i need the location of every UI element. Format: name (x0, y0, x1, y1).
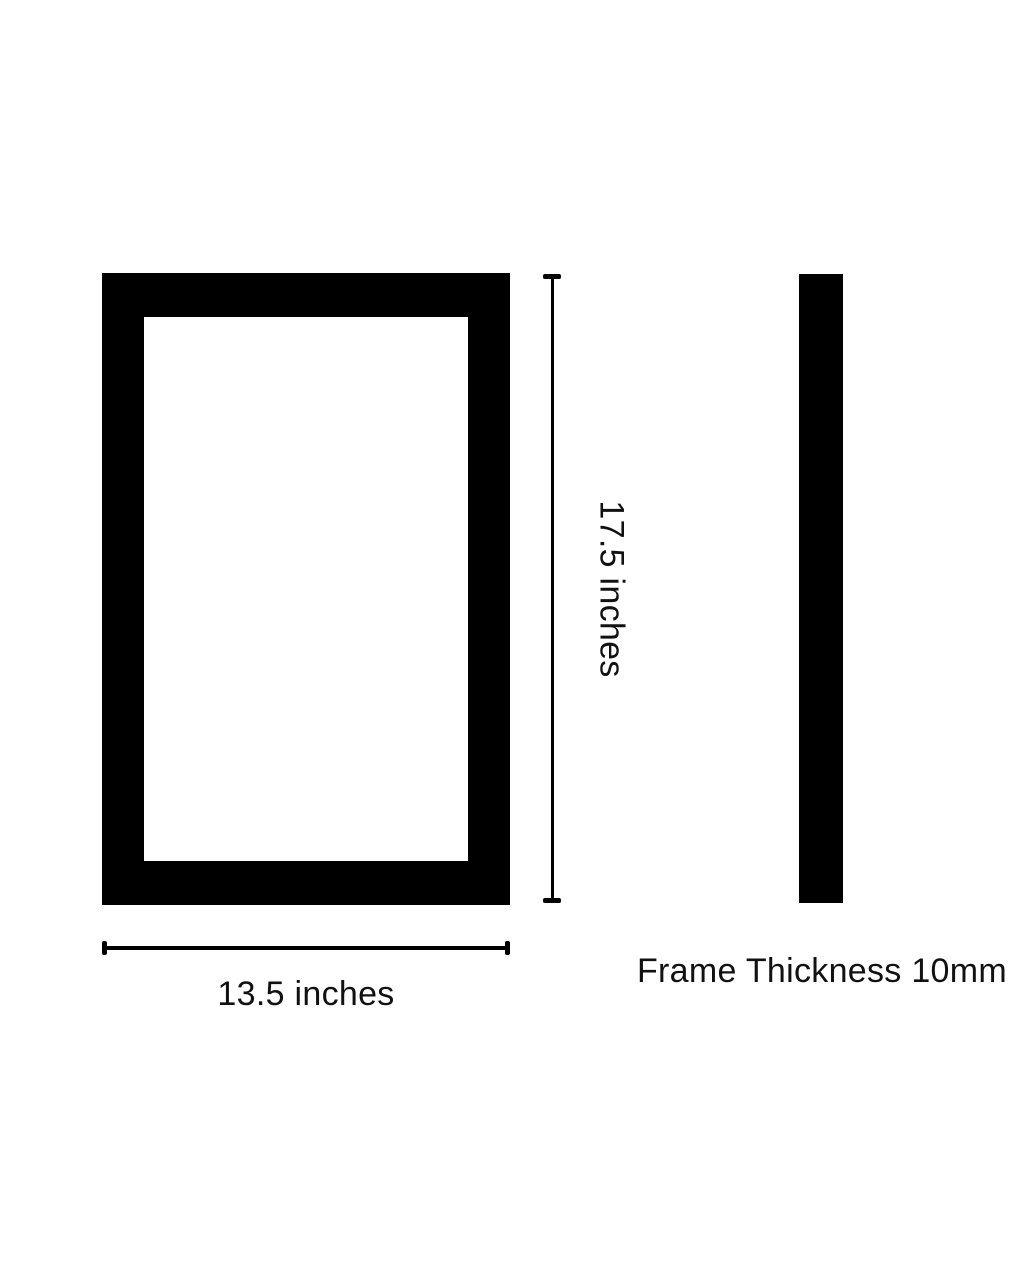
width-dimension-label: 13.5 inches (217, 974, 394, 1015)
height-dimension-bottom-tick (543, 898, 561, 903)
width-dimension-rule (104, 946, 508, 950)
frame-thickness-label: Frame Thickness 10mm (637, 951, 1007, 992)
width-dimension-right-tick (505, 941, 510, 955)
height-dimension-label: 17.5 inches (591, 500, 632, 677)
height-dimension-rule (551, 276, 554, 900)
frame-side-view (799, 274, 843, 903)
frame-front-view (102, 273, 510, 905)
frame-dimension-diagram: 17.5 inches 13.5 inches Frame Thickness … (0, 0, 1024, 1280)
